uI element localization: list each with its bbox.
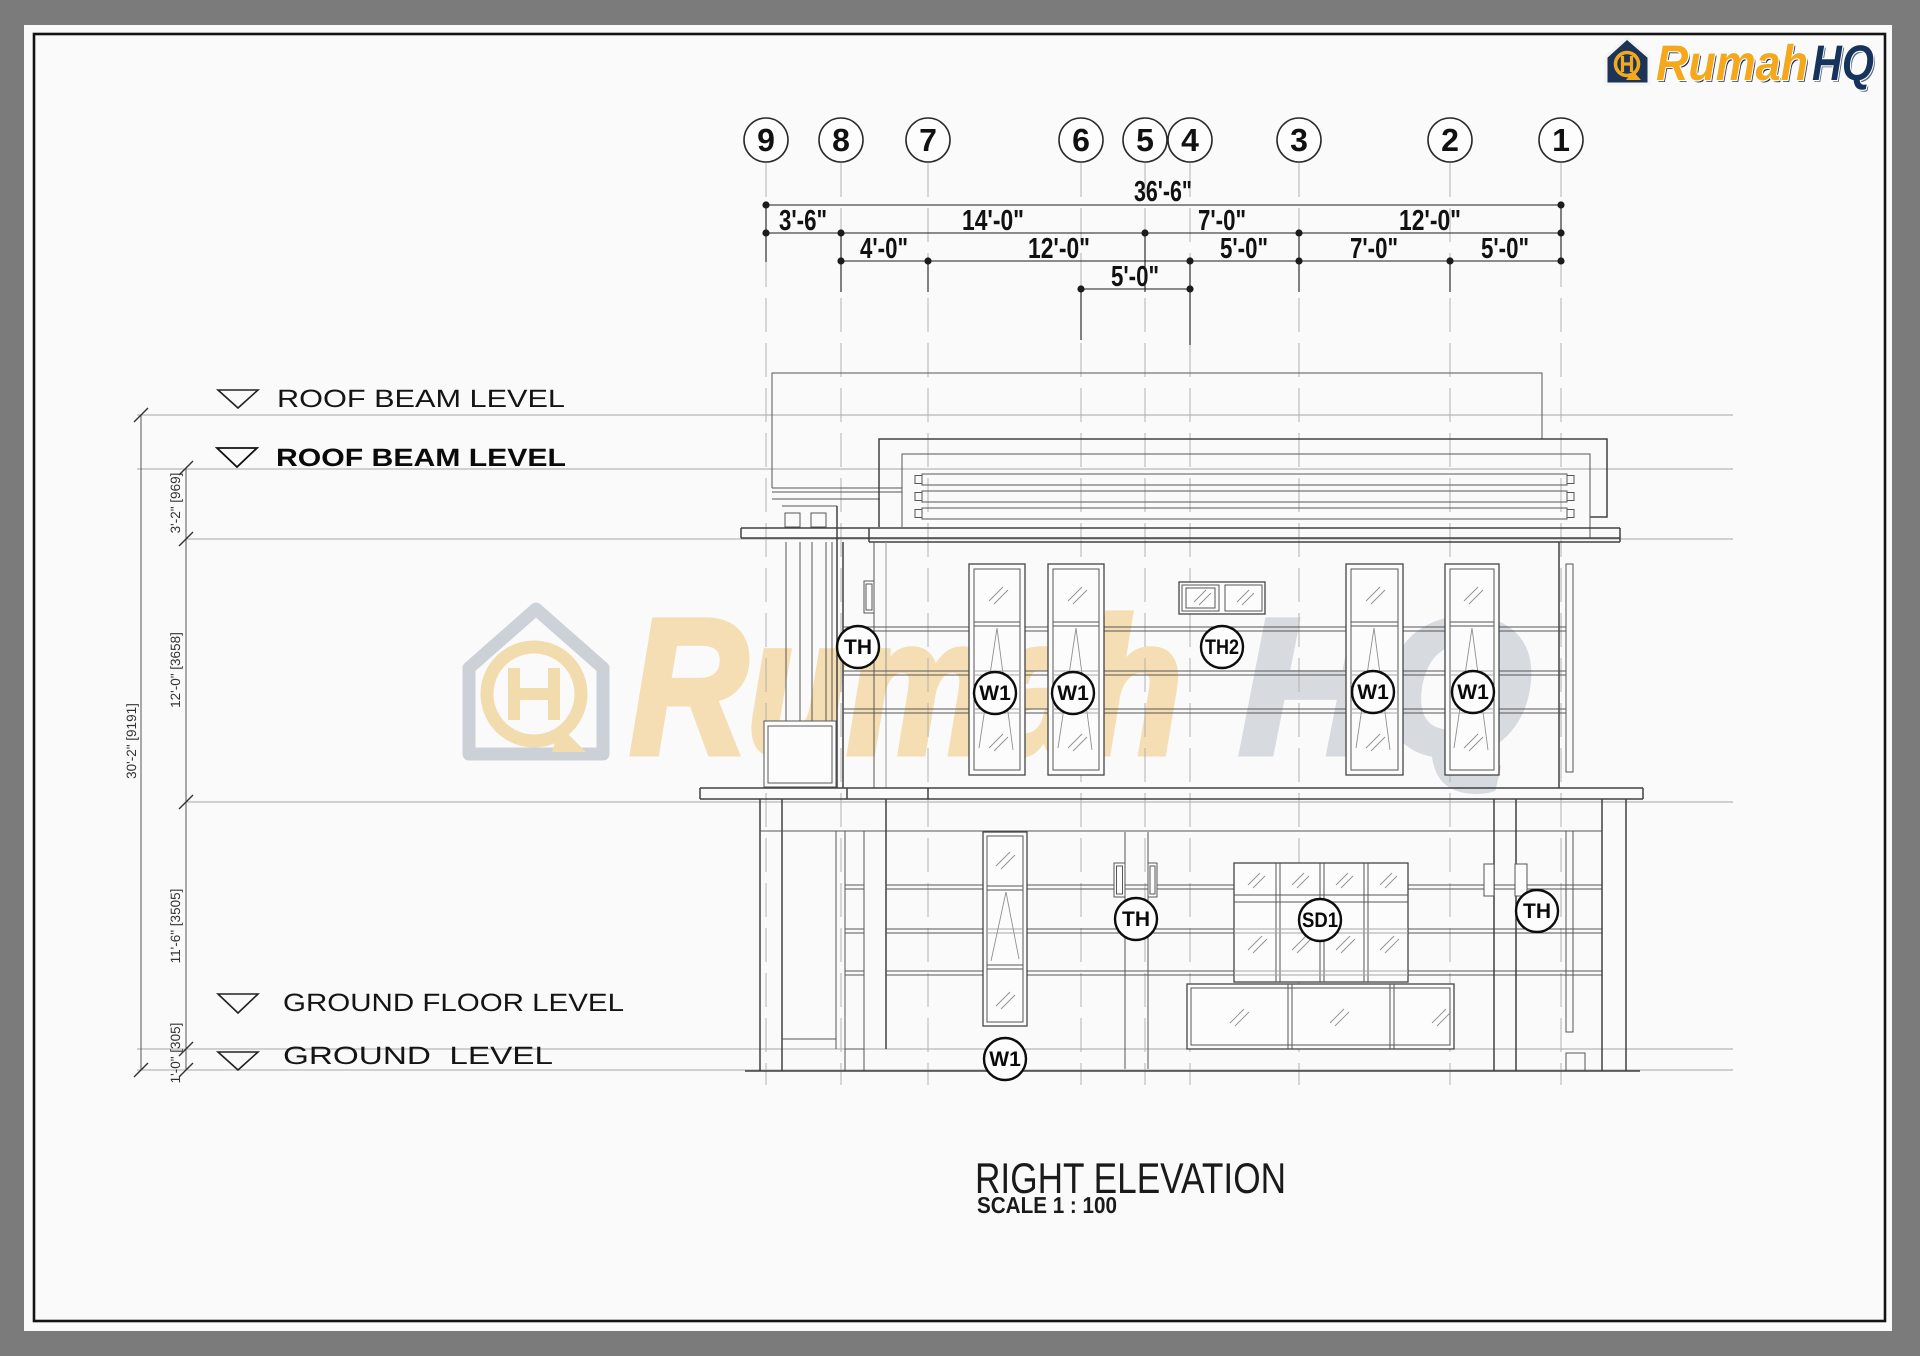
- svg-text:5: 5: [1136, 122, 1154, 158]
- svg-text:36'-6": 36'-6": [1134, 176, 1192, 208]
- svg-text:W1: W1: [979, 682, 1011, 705]
- svg-text:3'-2" [969]: 3'-2" [969]: [168, 473, 183, 534]
- svg-text:TH2: TH2: [1205, 636, 1239, 659]
- svg-text:W1: W1: [1457, 681, 1489, 704]
- svg-text:5'-0": 5'-0": [1111, 261, 1159, 293]
- svg-text:7: 7: [919, 122, 937, 158]
- svg-text:6: 6: [1072, 122, 1090, 158]
- svg-text:TH: TH: [1122, 908, 1150, 931]
- svg-text:3: 3: [1290, 122, 1308, 158]
- svg-text:30'-2" [9191]: 30'-2" [9191]: [124, 703, 139, 779]
- svg-text:W1: W1: [989, 1048, 1021, 1071]
- svg-text:12'-0": 12'-0": [1399, 205, 1461, 237]
- svg-text:2: 2: [1441, 122, 1459, 158]
- svg-text:1'-0" [305]: 1'-0" [305]: [168, 1023, 183, 1084]
- svg-text:4: 4: [1181, 122, 1199, 158]
- svg-text:12'-0": 12'-0": [1028, 233, 1090, 265]
- svg-text:14'-0": 14'-0": [962, 205, 1024, 237]
- svg-text:SCALE 1 : 100: SCALE 1 : 100: [977, 1192, 1117, 1218]
- svg-text:ROOF BEAM LEVEL: ROOF BEAM LEVEL: [277, 385, 565, 413]
- svg-text:W1: W1: [1357, 681, 1389, 704]
- svg-text:GROUND LEVEL: GROUND LEVEL: [283, 1042, 553, 1070]
- svg-text:3'-6": 3'-6": [779, 205, 827, 237]
- svg-text:5'-0": 5'-0": [1220, 233, 1268, 265]
- svg-text:W1: W1: [1057, 682, 1089, 705]
- svg-text:HQ: HQ: [1812, 35, 1874, 91]
- svg-text:9: 9: [757, 122, 775, 158]
- svg-text:TH: TH: [1523, 900, 1551, 923]
- svg-text:8: 8: [832, 122, 850, 158]
- svg-text:Rumah: Rumah: [1656, 35, 1808, 91]
- svg-text:SD1: SD1: [1302, 909, 1338, 932]
- svg-text:1: 1: [1552, 122, 1570, 158]
- svg-text:5'-0": 5'-0": [1481, 233, 1529, 265]
- svg-text:ROOF BEAM LEVEL: ROOF BEAM LEVEL: [276, 444, 566, 472]
- svg-text:4'-0": 4'-0": [860, 233, 908, 265]
- svg-text:7'-0": 7'-0": [1350, 233, 1398, 265]
- svg-text:12'-0" [3658]: 12'-0" [3658]: [168, 632, 183, 708]
- svg-text:GROUND FLOOR LEVEL: GROUND FLOOR LEVEL: [283, 989, 624, 1017]
- svg-text:TH: TH: [844, 636, 872, 659]
- svg-text:11'-6" [3505]: 11'-6" [3505]: [168, 889, 183, 964]
